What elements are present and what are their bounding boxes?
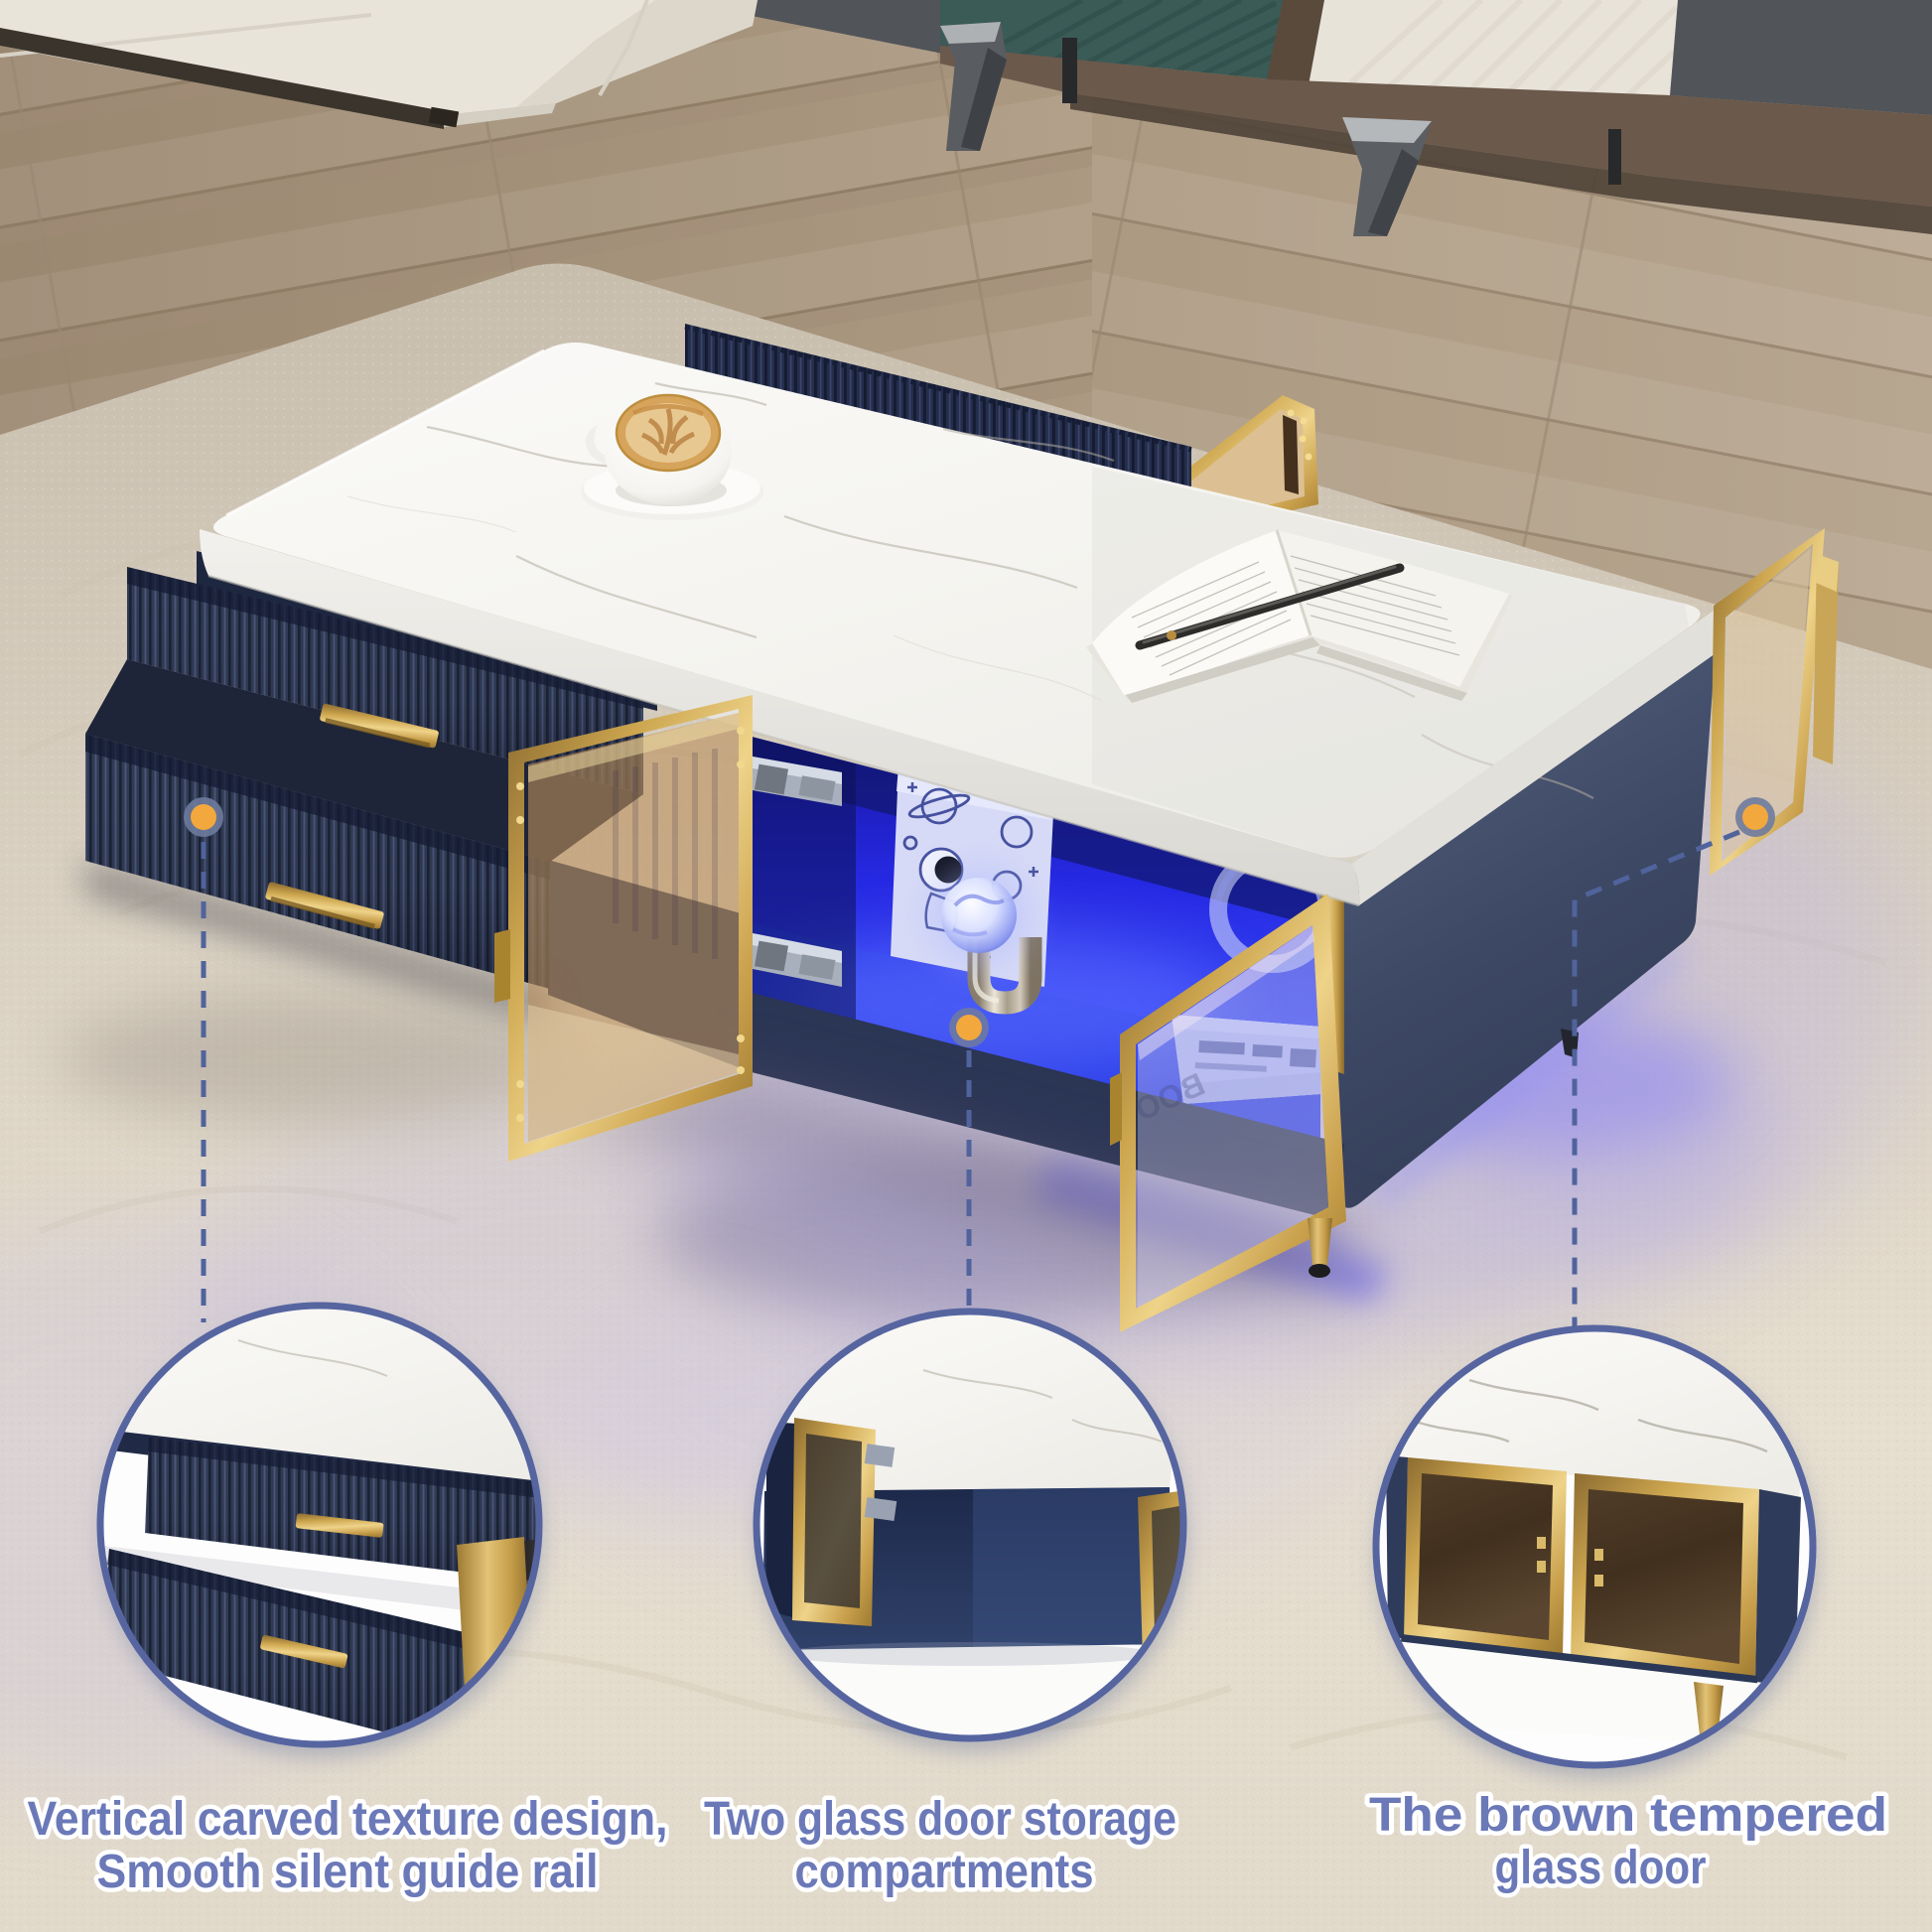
svg-text:Smooth silent guide rail: Smooth silent guide rail <box>97 1846 599 1898</box>
svg-text:Vertical carved texture design: Vertical carved texture design, <box>28 1793 668 1846</box>
svg-text:Two glass door storage: Two glass door storage <box>704 1793 1176 1846</box>
svg-text:compartments: compartments <box>795 1846 1094 1898</box>
svg-text:glass door: glass door <box>1495 1842 1707 1894</box>
svg-text:The brown tempered: The brown tempered <box>1369 1789 1887 1842</box>
